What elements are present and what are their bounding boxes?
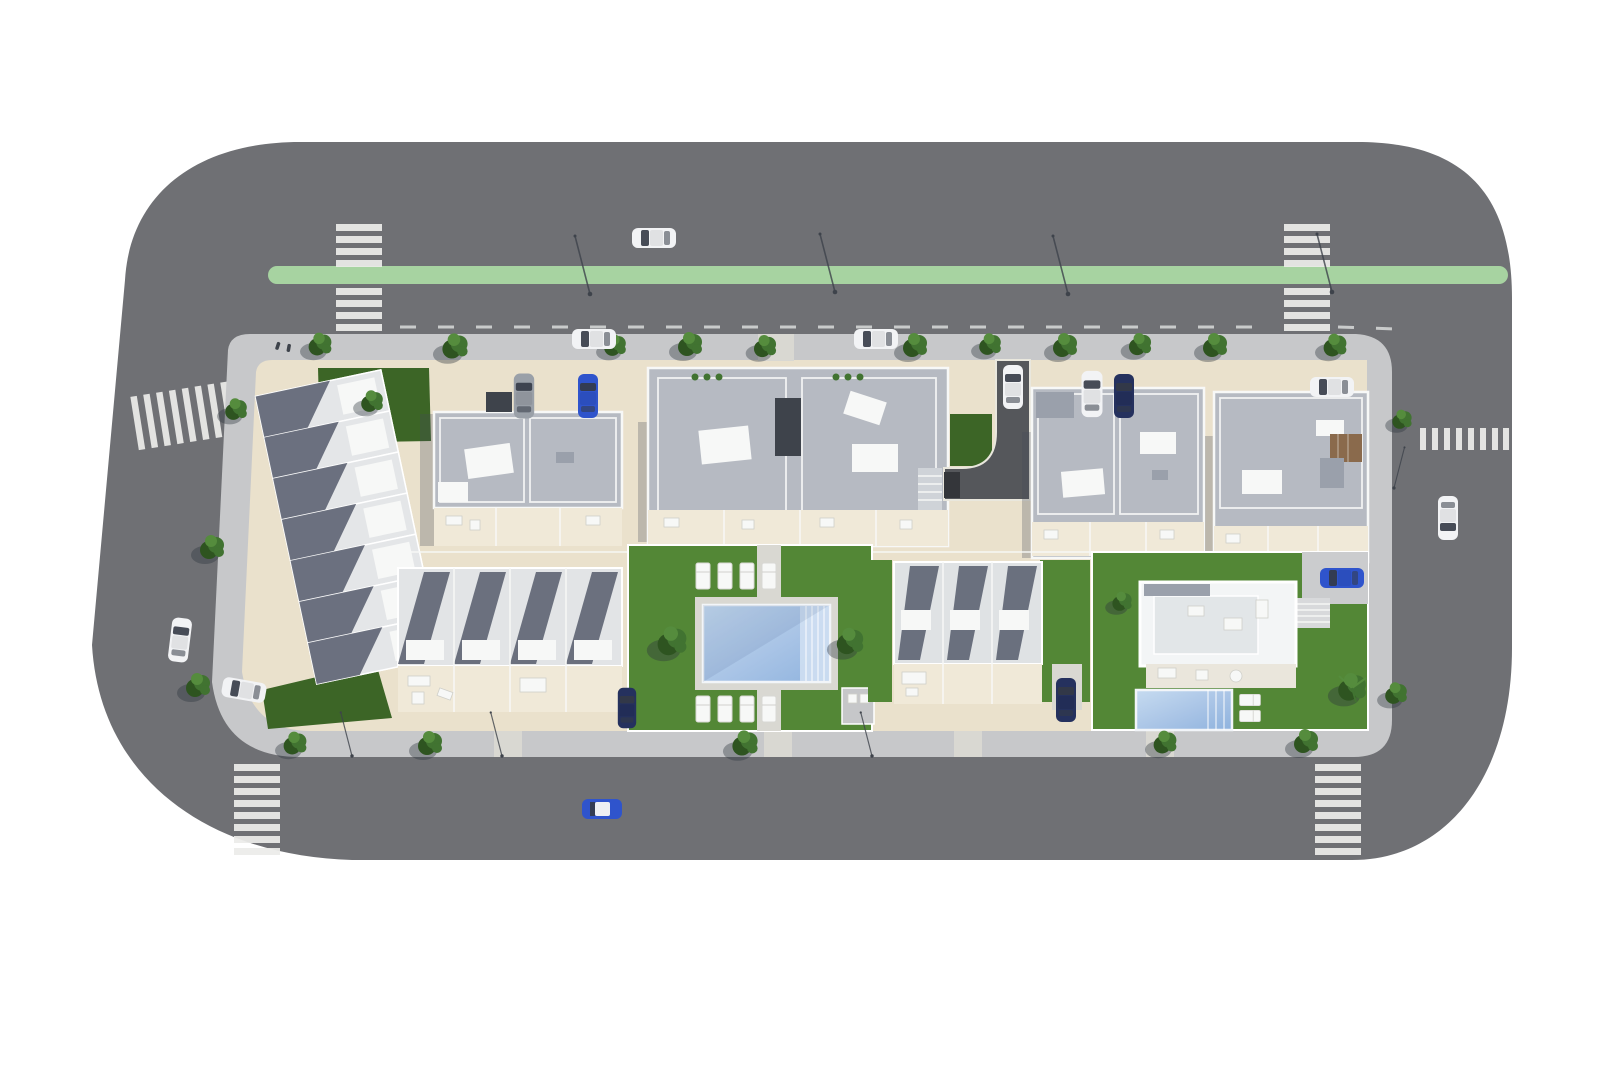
car-bottom-road [582,799,622,819]
car-parked-top-2 [854,329,898,349]
apartment-building-b [638,368,948,546]
car-building-d [1310,377,1354,397]
car-townhouse-south-b [1056,678,1076,722]
townhouse-row-south-a [398,568,622,712]
garage-door [944,472,960,498]
van-building-c [1082,371,1103,417]
car-top-road [632,228,676,248]
villa-stairs [1294,598,1330,628]
site-plan-render [0,0,1600,1066]
villa-lounger [1240,694,1261,705]
car-villa [1320,568,1364,588]
car-parked-top-1 [572,329,616,349]
villa-lounger [1240,710,1261,721]
wood-deck [1330,434,1362,462]
car-building-a [578,374,598,418]
apartment-building-d [1205,392,1368,562]
villa-pool [1136,690,1232,730]
van-building-a [514,374,534,419]
rooftop-stairs [918,468,942,510]
car-townhouse-south-a [618,688,636,728]
rooftop-solar-panel [486,392,512,412]
car-ramp [1003,365,1023,409]
apartment-building-c [1022,388,1204,558]
car-right-road [1438,496,1458,540]
car-building-c [1114,374,1134,418]
site-plan-canvas [0,0,1600,1066]
rooftop-core [775,398,801,456]
bike-lane [268,266,1508,284]
